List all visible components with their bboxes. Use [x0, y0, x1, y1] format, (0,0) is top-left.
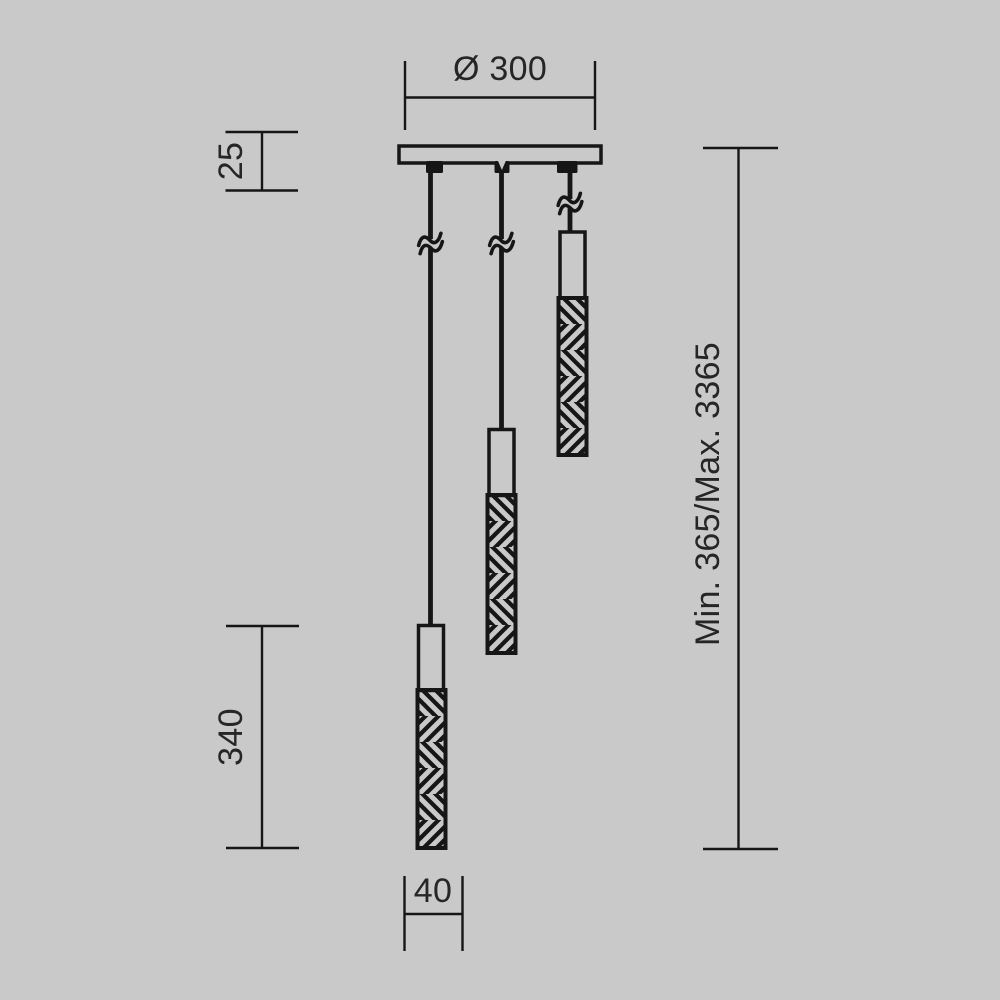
cable-connector-left	[426, 161, 443, 173]
label-canopy-diameter: Ø 300	[453, 52, 547, 86]
pendant-left-textured-shade	[418, 690, 446, 848]
pendant-right	[559, 232, 587, 455]
cable-connector-right	[557, 161, 578, 173]
label-canopy-thickness: 25	[214, 142, 248, 180]
ceiling-canopy	[399, 146, 601, 163]
pendant-left	[418, 626, 446, 849]
label-shade-length: 340	[214, 708, 248, 766]
label-suspension-height: Min. 365/Max. 3365	[691, 342, 725, 646]
pendant-light-dimension-drawing: Ø 300 25 Min. 365/Max. 3365 340 40	[0, 0, 1000, 1000]
drawing-linework	[0, 0, 1000, 1000]
pendant-middle-textured-shade	[488, 495, 516, 653]
pendant-middle-tube	[489, 430, 514, 496]
pendant-left-tube	[419, 626, 444, 691]
pendant-right-tube	[560, 232, 585, 298]
label-shade-diameter: 40	[414, 874, 452, 908]
pendant-right-textured-shade	[559, 298, 587, 455]
pendant-middle	[488, 430, 516, 654]
